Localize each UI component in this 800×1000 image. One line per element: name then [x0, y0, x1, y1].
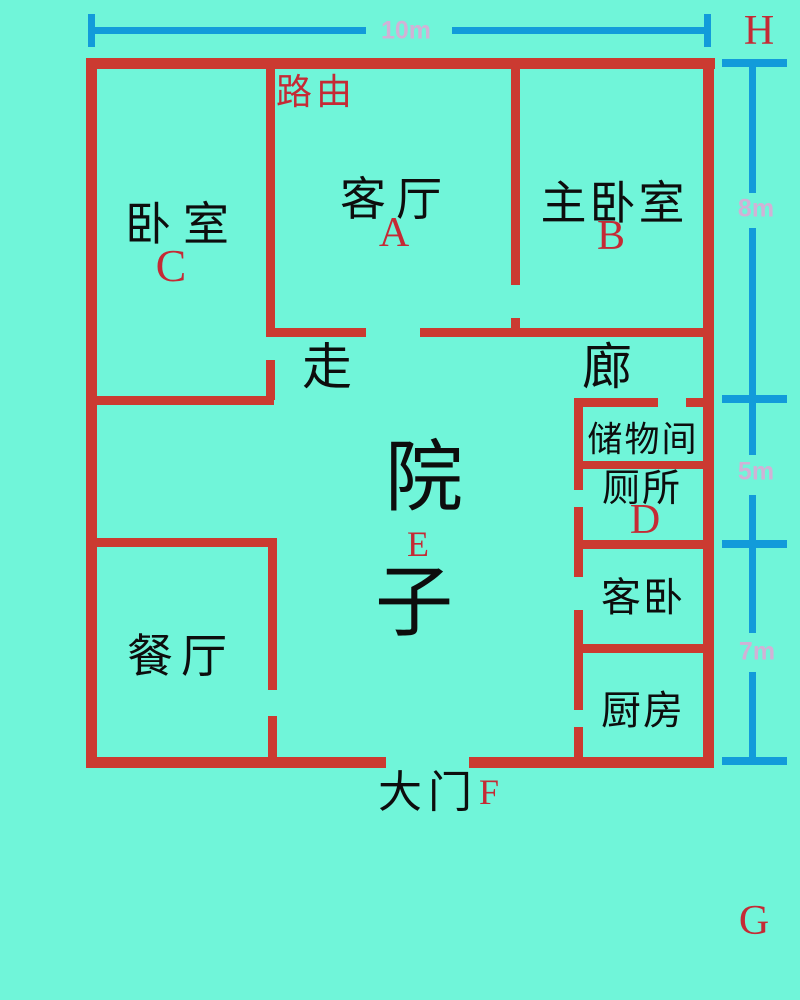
dim-right-seg-6 [749, 672, 756, 760]
dim-right-seg-4 [749, 495, 756, 543]
marker-d: D [630, 499, 660, 541]
wall-outer-top [86, 58, 715, 69]
marker-h: H [744, 10, 774, 52]
wall-outer-right [703, 58, 714, 768]
wall-rightcol-left-1 [574, 398, 583, 490]
wall-outer-bottom-right [469, 757, 714, 768]
wall-outer-left [86, 58, 97, 768]
floor-plan: 10m 8m 5m 7m 卧室 客厅 主卧室 走 廊 储物间 厕所 客卧 厨房 … [0, 0, 800, 1000]
room-label-courtyard-yuan: 院 [385, 439, 463, 517]
wall-corridor-top-left [266, 328, 366, 337]
router-annotation: 路由 [276, 74, 356, 110]
dimension-right-7m: 7m [739, 640, 775, 665]
dim-top-tick-left [88, 14, 95, 47]
wall-living-master-stub [511, 318, 520, 332]
wall-dining-right-1 [268, 538, 277, 690]
dimension-right-5m: 5m [738, 460, 774, 485]
room-label-corridor-zou: 走 [302, 342, 352, 392]
wall-bedroom-bottom-stub [266, 360, 275, 400]
dim-right-seg-1 [749, 63, 756, 193]
room-label-kitchen: 厨房 [601, 691, 685, 731]
room-label-main-gate: 大门 [378, 771, 478, 815]
wall-guest-kitchen-divider [574, 644, 708, 653]
room-label-storage: 储物间 [587, 423, 698, 458]
marker-g: G [739, 900, 769, 942]
wall-bedroom-living-divider [266, 69, 275, 331]
room-label-courtyard-zi: 子 [375, 564, 453, 642]
marker-b: B [597, 215, 625, 257]
wall-dining-top [92, 538, 277, 547]
wall-dining-right-2 [268, 716, 277, 768]
wall-living-master-divider [511, 69, 520, 285]
marker-f: F [479, 774, 499, 810]
wall-storage-top-left [574, 398, 658, 407]
dim-right-seg-3 [749, 400, 756, 455]
dimension-top-10m: 10m [381, 19, 431, 44]
dim-top-tick-right [704, 14, 711, 47]
room-label-dining-room: 餐厅 [127, 634, 235, 680]
marker-e: E [407, 526, 429, 562]
dim-right-seg-5 [749, 545, 756, 633]
wall-corridor-top-right [420, 328, 710, 337]
room-label-corridor-lang: 廊 [582, 342, 632, 392]
dim-right-tick-bottom [722, 757, 787, 765]
dim-top-line-left [90, 27, 366, 34]
wall-bedroom-bottom [92, 396, 274, 405]
wall-outer-bottom-left [86, 757, 386, 768]
marker-a: A [379, 212, 409, 254]
wall-rightcol-left-3 [574, 610, 583, 710]
dim-top-line-right [452, 27, 710, 34]
dimension-right-8m: 8m [738, 197, 774, 222]
dim-right-seg-2 [749, 228, 756, 398]
wall-rightcol-left-4 [574, 727, 583, 767]
wall-storage-top-right [686, 398, 708, 407]
room-label-guest-bedroom: 客卧 [601, 578, 685, 618]
marker-c: C [156, 243, 187, 289]
